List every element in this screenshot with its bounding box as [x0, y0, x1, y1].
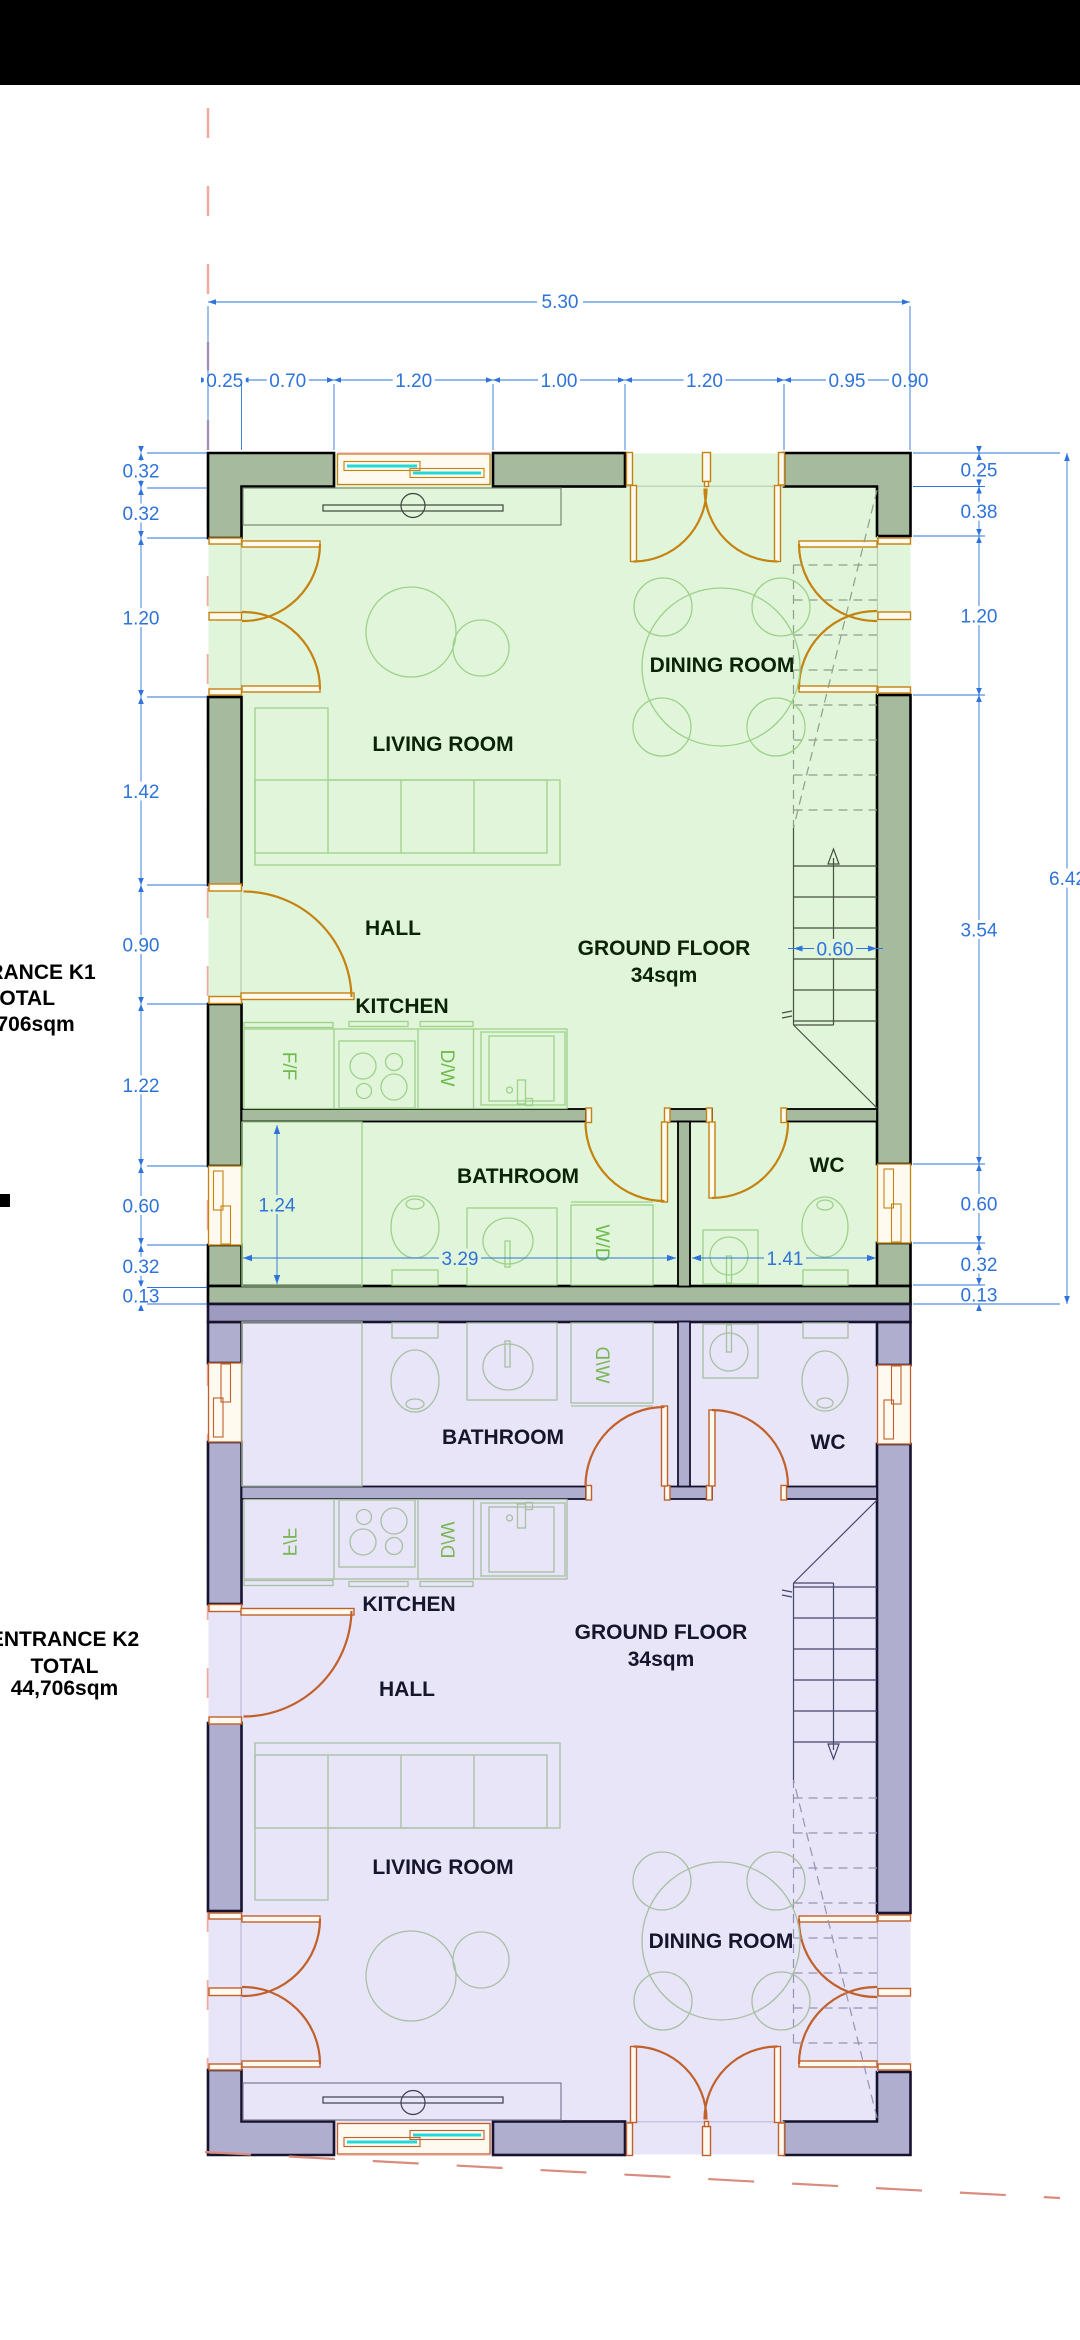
svg-text:1.20: 1.20 [123, 608, 160, 629]
svg-text:WC: WC [811, 1431, 846, 1454]
svg-text:HALL: HALL [379, 1678, 435, 1701]
svg-text:GROUND FLOOR: GROUND FLOOR [575, 1621, 748, 1644]
svg-text:44,706sqm: 44,706sqm [11, 1677, 118, 1700]
svg-text:KITCHEN: KITCHEN [362, 1593, 455, 1616]
svg-text:6.42: 6.42 [1049, 869, 1080, 890]
svg-text:34sqm: 34sqm [631, 964, 698, 987]
svg-text:3.29: 3.29 [442, 1249, 479, 1270]
svg-text:0.60: 0.60 [961, 1194, 998, 1215]
svg-text:0.32: 0.32 [123, 504, 160, 525]
svg-text:ENTRANCE K2: ENTRANCE K2 [0, 1628, 139, 1651]
svg-text:1.24: 1.24 [259, 1195, 296, 1216]
svg-text:DINING ROOM: DINING ROOM [649, 1930, 794, 1953]
svg-text:1.22: 1.22 [123, 1076, 160, 1097]
svg-text:34sqm: 34sqm [628, 1648, 695, 1671]
svg-text:44,706sqm: 44,706sqm [0, 1013, 75, 1036]
svg-text:0.70: 0.70 [269, 371, 306, 392]
svg-text:0.25: 0.25 [206, 371, 243, 392]
svg-text:5.30: 5.30 [542, 292, 579, 313]
svg-text:BATHROOM: BATHROOM [442, 1426, 564, 1449]
svg-text:TOTAL: TOTAL [30, 1655, 98, 1678]
svg-text:1.00: 1.00 [541, 371, 578, 392]
svg-text:0.90: 0.90 [123, 935, 160, 956]
svg-text:1.20: 1.20 [961, 606, 998, 627]
svg-text:GROUND FLOOR: GROUND FLOOR [578, 937, 751, 960]
svg-text:0.38: 0.38 [961, 502, 998, 523]
svg-text:0.25: 0.25 [961, 461, 998, 482]
svg-text:0.32: 0.32 [123, 1257, 160, 1278]
svg-text:0.13: 0.13 [961, 1285, 998, 1306]
svg-text:LIVING ROOM: LIVING ROOM [372, 1856, 513, 1879]
svg-text:ENTRANCE K1: ENTRANCE K1 [0, 961, 96, 984]
svg-text:TOTAL: TOTAL [0, 987, 55, 1010]
svg-text:LIVING ROOM: LIVING ROOM [372, 733, 513, 756]
svg-text:0.32: 0.32 [961, 1255, 998, 1276]
svg-text:DINING ROOM: DINING ROOM [650, 654, 795, 677]
svg-text:0.60: 0.60 [817, 939, 854, 960]
svg-text:3.54: 3.54 [961, 920, 998, 941]
svg-text:1.20: 1.20 [395, 371, 432, 392]
svg-text:HALL: HALL [365, 917, 421, 940]
svg-text:0.95: 0.95 [829, 371, 866, 392]
svg-text:WC: WC [810, 1154, 845, 1177]
svg-text:BATHROOM: BATHROOM [457, 1165, 579, 1188]
svg-text:0.32: 0.32 [123, 461, 160, 482]
svg-text:1.42: 1.42 [123, 782, 160, 803]
svg-text:KITCHEN: KITCHEN [355, 995, 448, 1018]
svg-text:0.60: 0.60 [123, 1196, 160, 1217]
svg-text:1.20: 1.20 [686, 371, 723, 392]
svg-text:1.41: 1.41 [767, 1249, 804, 1270]
